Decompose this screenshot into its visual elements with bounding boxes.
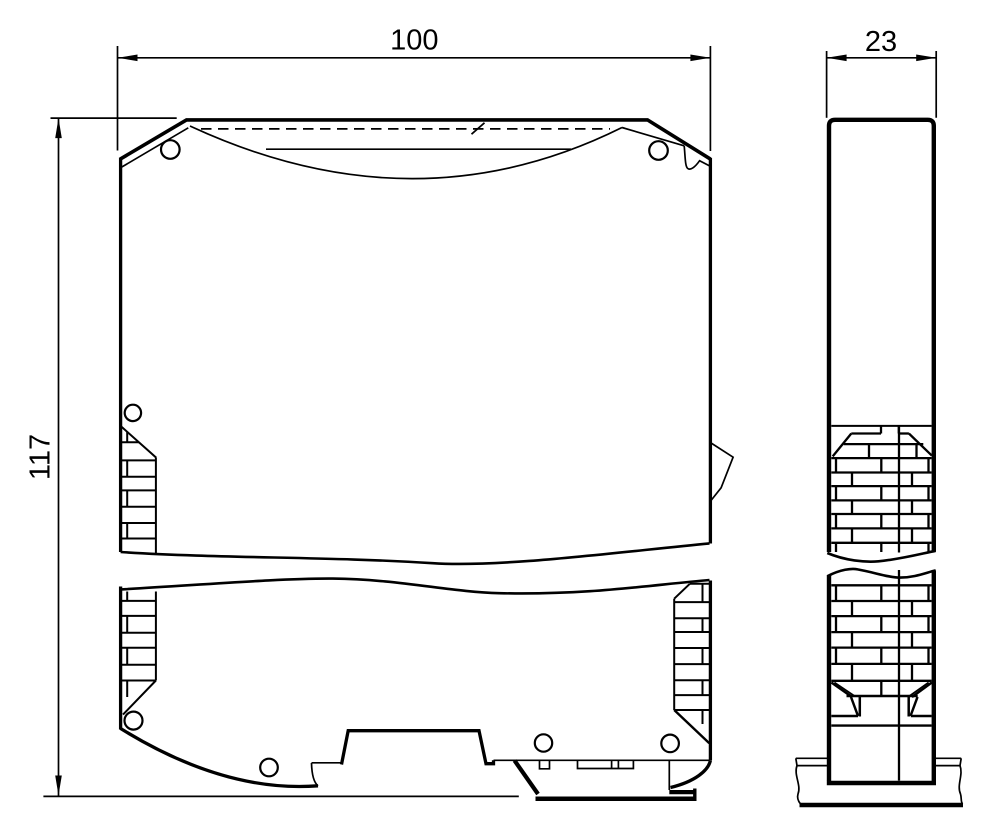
svg-text:23: 23	[865, 26, 897, 58]
svg-text:100: 100	[390, 25, 438, 57]
svg-text:117: 117	[24, 434, 56, 480]
